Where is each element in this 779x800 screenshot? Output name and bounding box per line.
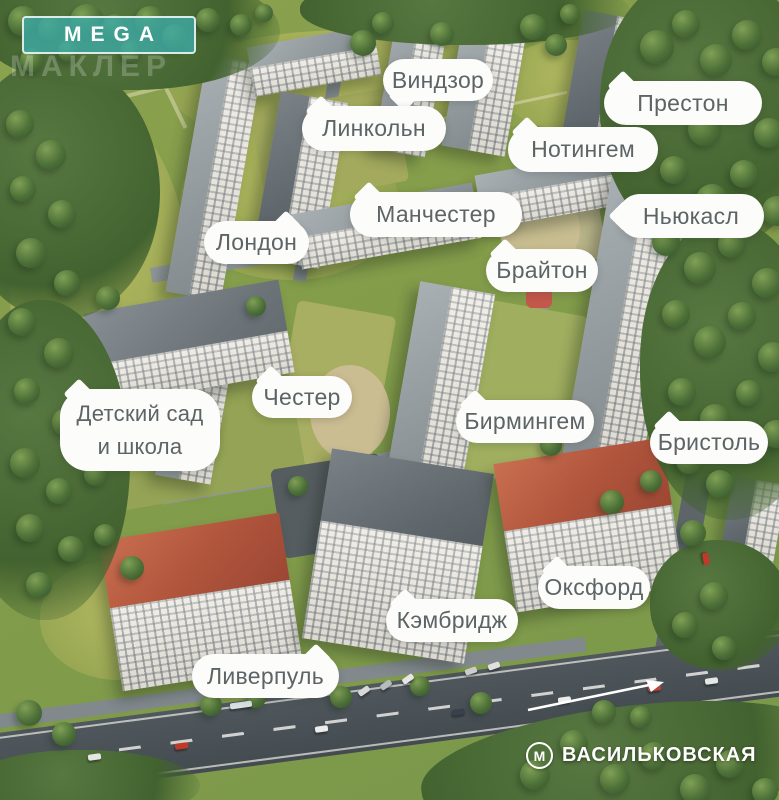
building-facade — [302, 520, 483, 663]
tree — [46, 478, 72, 504]
tree — [520, 14, 546, 40]
building-label-london: Лондон — [204, 221, 309, 264]
tree — [730, 160, 758, 188]
tree — [58, 536, 84, 562]
tree — [430, 22, 454, 46]
direction-arrow-icon — [520, 672, 680, 718]
tree — [246, 296, 266, 316]
tree — [660, 156, 688, 184]
tree — [662, 300, 690, 328]
watermark-brand: MEGA — [55, 23, 163, 47]
tree — [48, 200, 76, 228]
metro-icon: М — [526, 742, 553, 769]
tree — [54, 270, 80, 296]
building-label-school: Детский сад и школа — [60, 389, 220, 471]
building-label-nyukasl: Ньюкасл — [618, 194, 764, 238]
tree — [684, 252, 716, 284]
tree — [706, 470, 734, 498]
tree — [120, 556, 144, 580]
tree — [372, 12, 394, 34]
building-label-brighton: Брайтон — [486, 249, 598, 292]
watermark-ghost-text: МАКЛЕР — [10, 50, 172, 84]
tree — [694, 326, 726, 358]
tree — [640, 470, 662, 492]
building-label-notingem: Нотингем — [508, 127, 658, 172]
tree — [255, 4, 273, 22]
tree — [752, 778, 778, 800]
tree — [640, 30, 674, 64]
tree — [10, 176, 36, 202]
tree — [672, 612, 698, 638]
metro-station-sign: М ВАСИЛЬКОВСКАЯ — [526, 742, 757, 769]
tree — [712, 636, 736, 660]
building-label-preston: Престон — [604, 81, 762, 125]
tree — [44, 338, 74, 368]
tree — [672, 10, 700, 38]
tree — [196, 8, 220, 32]
building-label-birmingem: Бирмингем — [456, 400, 594, 443]
tree — [10, 448, 40, 478]
tree — [16, 238, 46, 268]
building-label-chester: Честер — [252, 376, 352, 418]
tree — [96, 286, 120, 310]
metro-station-name: ВАСИЛЬКОВСКАЯ — [562, 744, 757, 767]
building-label-manchester: Манчестер — [350, 192, 522, 237]
masterplan-image: ВиндзорПрестонЛинкольнНотингемМанчестерН… — [0, 0, 779, 800]
tree — [230, 14, 252, 36]
tree — [16, 514, 44, 542]
building-label-oksford: Оксфорд — [538, 566, 650, 609]
tree — [754, 118, 779, 148]
tree — [94, 524, 116, 546]
tree — [600, 490, 624, 514]
building-label-linkoln: Линкольн — [302, 106, 446, 151]
watermark-badge: MEGA — [22, 16, 196, 54]
tree — [752, 268, 779, 298]
tree — [52, 722, 76, 746]
tree — [14, 378, 40, 404]
building-label-vindzor: Виндзор — [383, 59, 493, 101]
tree — [560, 4, 580, 24]
tree — [732, 20, 762, 50]
tree — [545, 34, 567, 56]
tree — [288, 476, 308, 496]
building-label-liverpul: Ливерпуль — [192, 654, 339, 698]
tree — [470, 692, 492, 714]
tree — [26, 572, 52, 598]
tree — [736, 380, 762, 406]
tree — [700, 582, 728, 610]
tree — [36, 140, 66, 170]
tree — [8, 308, 36, 336]
building-label-bristol: Бристоль — [650, 421, 768, 464]
tree — [680, 774, 710, 800]
tree — [668, 378, 696, 406]
tree — [700, 44, 732, 76]
tree — [350, 30, 376, 56]
tree — [728, 302, 756, 330]
building-label-kembridzh: Кэмбридж — [386, 599, 518, 642]
tree — [680, 520, 706, 546]
tree — [16, 700, 42, 726]
label-tail — [300, 643, 331, 674]
tree — [6, 110, 34, 138]
